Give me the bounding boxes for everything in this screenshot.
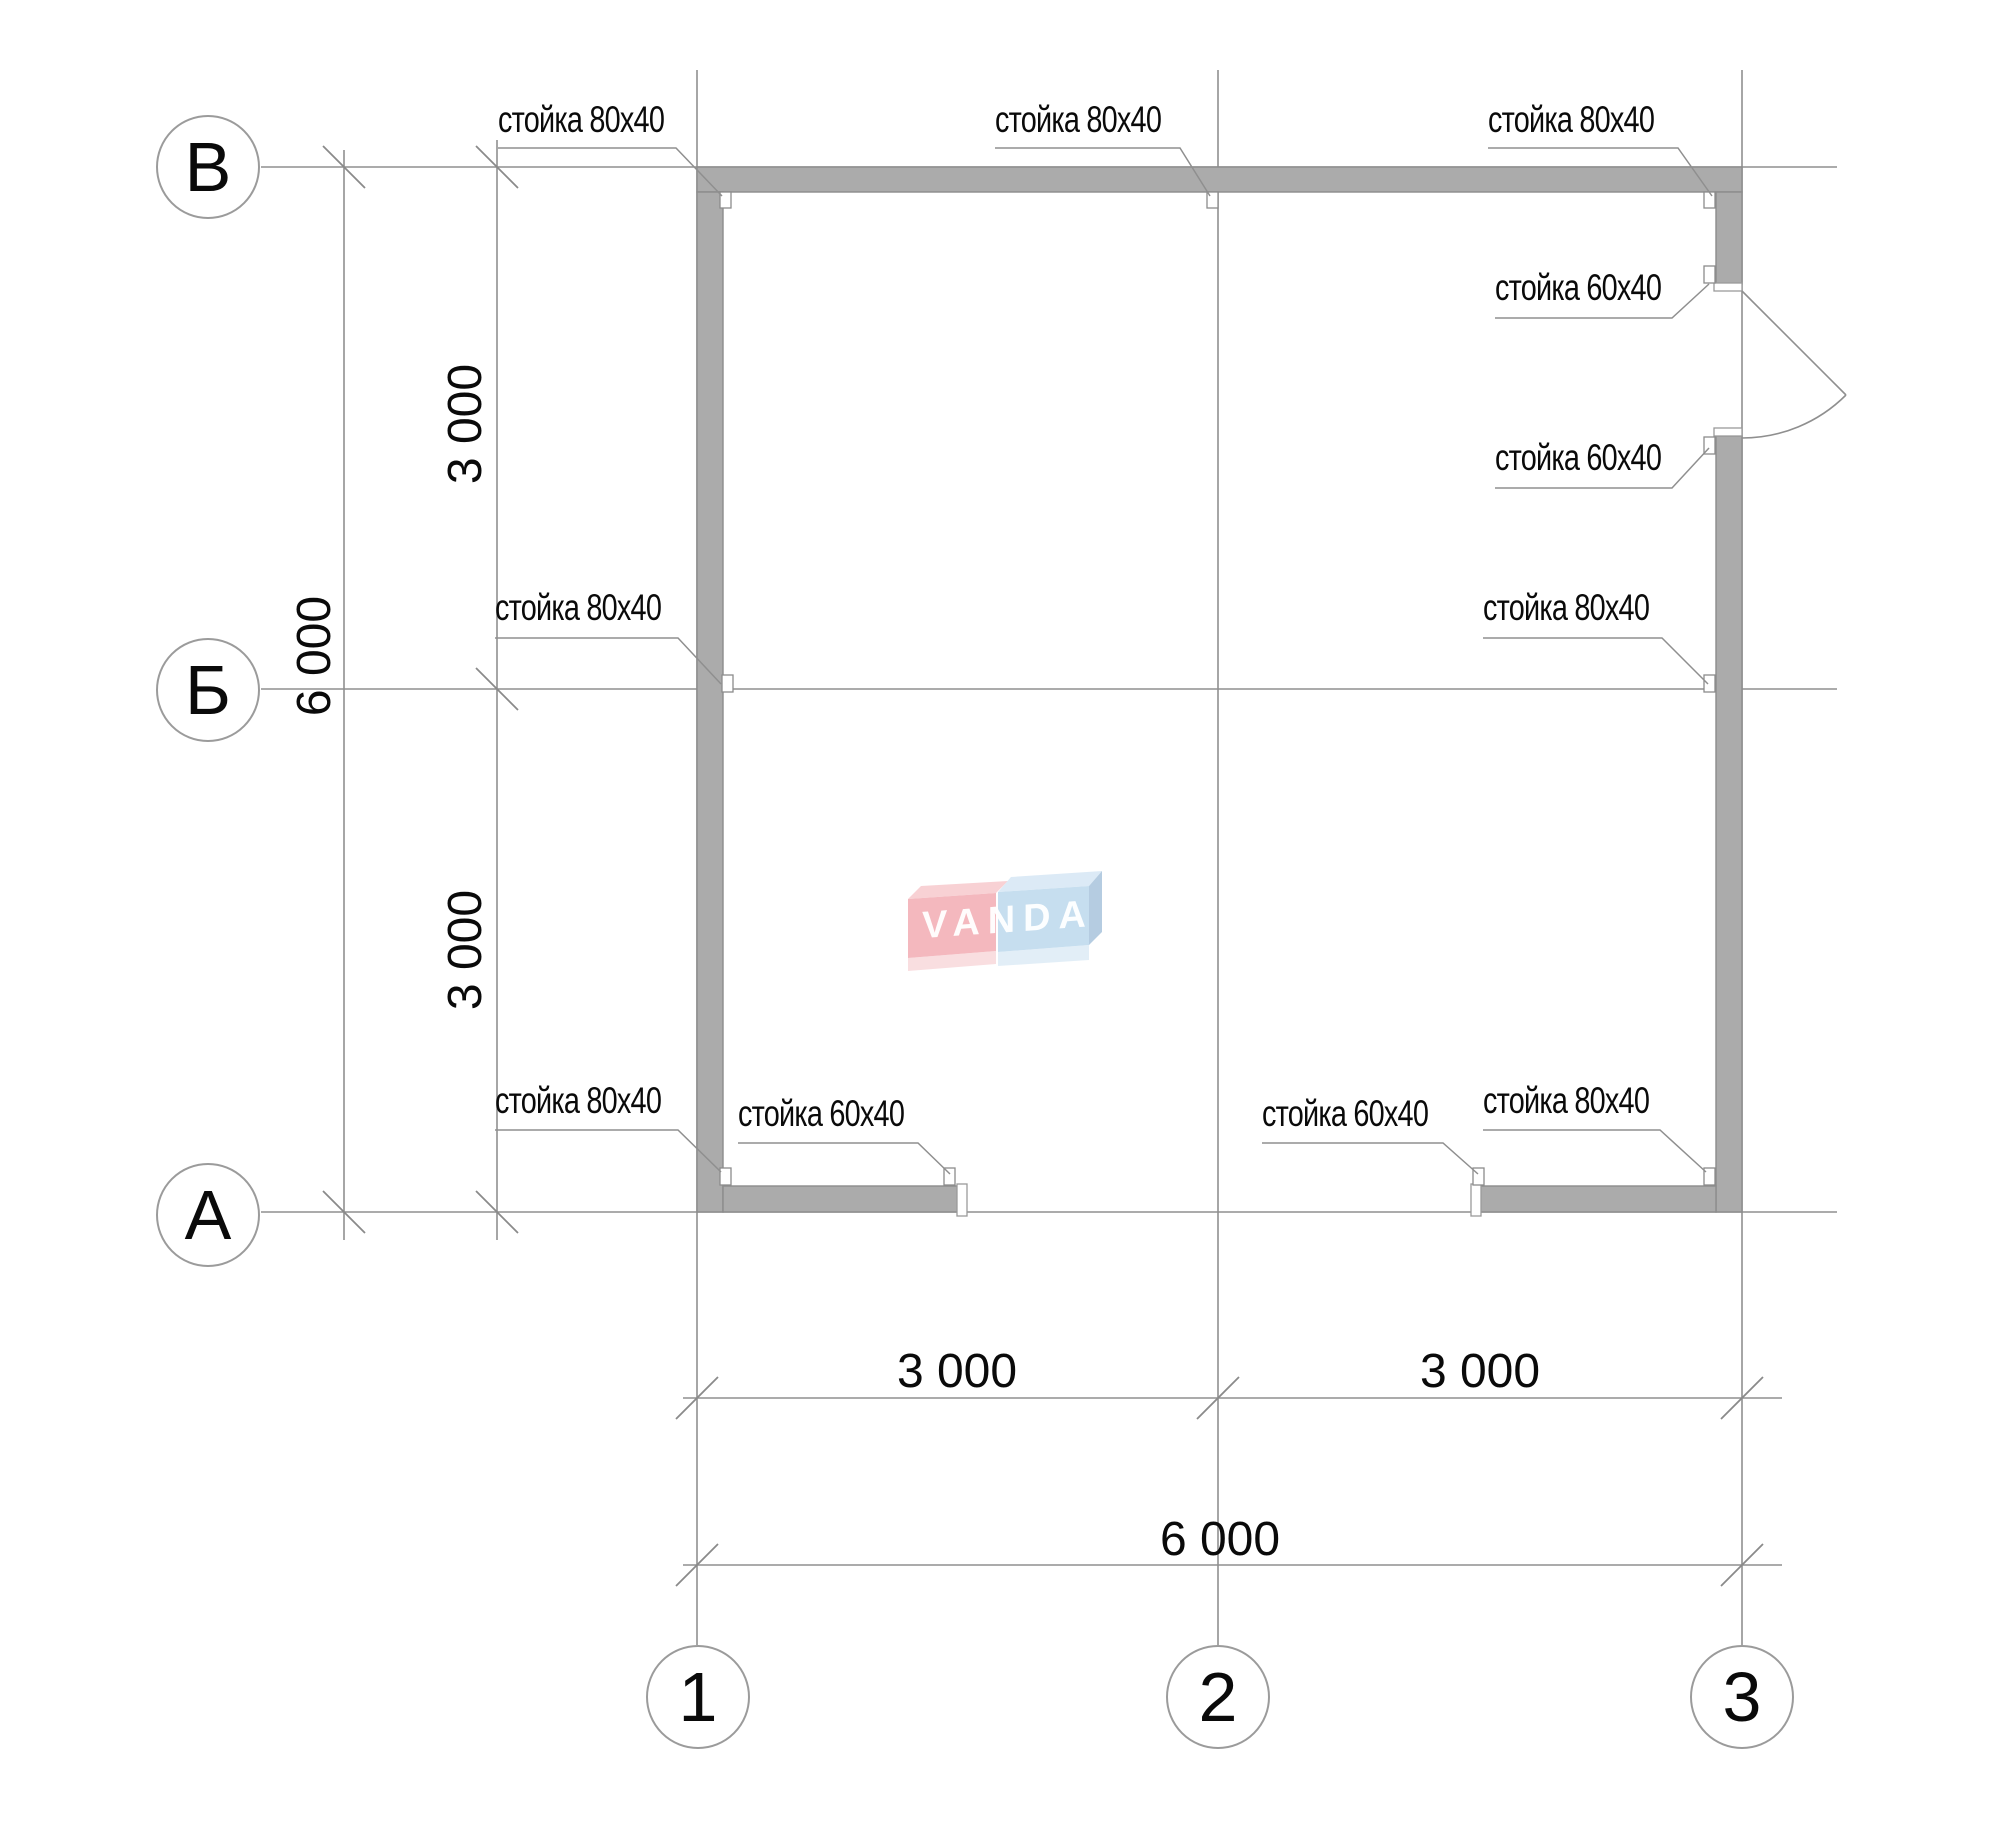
post-bottom-left-corner bbox=[720, 1168, 731, 1185]
dim-bottom-right: 3 000 bbox=[1420, 1348, 1540, 1396]
leader-bottom-left-corner bbox=[495, 1130, 721, 1172]
door-leaf-line bbox=[1742, 291, 1846, 395]
wall-bottom-left-segment bbox=[723, 1186, 958, 1212]
bottom-opening-jamb-right bbox=[1471, 1184, 1481, 1216]
dim-left-upper: 3 000 bbox=[442, 364, 490, 484]
wall-right-below-door bbox=[1716, 436, 1742, 1212]
axis-bubble-row-v: В bbox=[156, 115, 260, 219]
leader-right-axis-b bbox=[1483, 638, 1708, 684]
wall-bottom-right-segment bbox=[1480, 1186, 1716, 1212]
axis-label-a: А bbox=[185, 1180, 232, 1250]
dimension-lines bbox=[344, 140, 1782, 1565]
callout-label-bottom-60-left: стойка 60x40 bbox=[738, 1095, 904, 1132]
floor-plan-canvas: стойка 80x40 стойка 80x40 стойка 80x40 с… bbox=[0, 0, 2000, 1834]
callout-label-bottom-left-corner: стойка 80x40 bbox=[495, 1082, 661, 1119]
callout-label-right-door-top: стойка 60x40 bbox=[1495, 269, 1661, 306]
post-bottom-right-corner bbox=[1704, 1168, 1715, 1185]
opening-jambs bbox=[957, 283, 1742, 1216]
leader-bottom-60-left bbox=[738, 1143, 950, 1174]
door-symbol bbox=[1742, 291, 1846, 438]
dimension-ticks bbox=[323, 146, 1763, 1586]
dim-left-lower: 3 000 bbox=[442, 890, 490, 1010]
post-top-left-corner bbox=[720, 192, 731, 208]
axis-label-3: 3 bbox=[1723, 1662, 1762, 1732]
wall-top bbox=[697, 167, 1742, 192]
axis-bubble-col-2: 2 bbox=[1166, 1645, 1270, 1749]
post-right-axis-b bbox=[1704, 675, 1715, 692]
axis-label-v: В bbox=[185, 132, 232, 202]
axis-bubble-row-b: Б bbox=[156, 638, 260, 742]
bottom-opening-jamb-left bbox=[957, 1184, 967, 1216]
axis-bubble-col-1: 1 bbox=[646, 1645, 750, 1749]
leader-left-axis-b bbox=[495, 638, 721, 684]
dim-left-total: 6 000 bbox=[291, 596, 339, 716]
dim-bottom-total: 6 000 bbox=[1160, 1516, 1280, 1564]
post-top-right-corner bbox=[1704, 192, 1715, 208]
callout-label-left-axis-b: стойка 80x40 bbox=[495, 589, 661, 626]
wall-right-above-door bbox=[1716, 192, 1742, 284]
dim-bottom-left: 3 000 bbox=[897, 1348, 1017, 1396]
leader-top-left bbox=[498, 148, 722, 196]
door-jamb-bottom bbox=[1714, 428, 1742, 436]
callout-label-top-right: стойка 80x40 bbox=[1488, 101, 1654, 138]
wall-left bbox=[697, 192, 723, 1212]
door-jamb-top bbox=[1714, 283, 1742, 291]
callout-label-top-left: стойка 80x40 bbox=[498, 101, 664, 138]
leader-bottom-right-corner bbox=[1483, 1130, 1706, 1172]
leader-bottom-60-right bbox=[1262, 1143, 1478, 1174]
callout-label-top-middle: стойка 80x40 bbox=[995, 101, 1161, 138]
door-swing-arc bbox=[1742, 395, 1846, 438]
axis-label-2: 2 bbox=[1199, 1662, 1238, 1732]
axis-bubble-col-3: 3 bbox=[1690, 1645, 1794, 1749]
axis-bubble-row-a: А bbox=[156, 1163, 260, 1267]
callout-label-bottom-right-corner: стойка 80x40 bbox=[1483, 1082, 1649, 1119]
callout-label-right-door-bottom: стойка 60x40 bbox=[1495, 439, 1661, 476]
axis-label-b: Б bbox=[185, 655, 231, 725]
post-door-top bbox=[1704, 266, 1715, 283]
post-left-axis-b bbox=[722, 675, 733, 692]
callout-label-right-axis-b: стойка 80x40 bbox=[1483, 589, 1649, 626]
callout-label-bottom-60-right: стойка 60x40 bbox=[1262, 1095, 1428, 1132]
axis-label-1: 1 bbox=[679, 1662, 718, 1732]
